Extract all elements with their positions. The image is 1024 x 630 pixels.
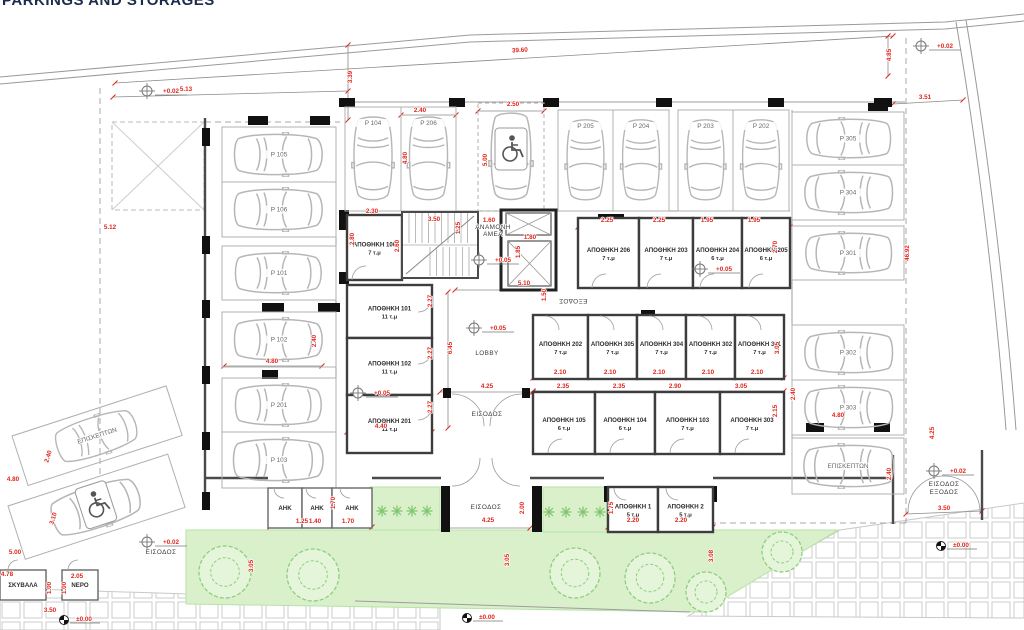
room-name: ΝΕΡΟ xyxy=(71,582,89,589)
dimension-label: 3.50 xyxy=(44,607,57,614)
dimension-label: 1.70 xyxy=(342,518,355,525)
tree-icon xyxy=(199,546,251,598)
dimension-label: 2.30 xyxy=(366,208,379,215)
dimension-label: 2.27 xyxy=(427,294,434,307)
parking-stall-επισκεπτων: ΕΠΙΣΚΕΠΤΩΝ xyxy=(12,386,182,486)
parking-stall-p-202: P 202 xyxy=(733,110,789,211)
room-name: ΑΠΟΘΗΚΗ 205 xyxy=(744,247,788,254)
shrub-icon xyxy=(377,506,388,517)
room-area: 11 τ.μ xyxy=(382,315,398,321)
room-αποθηκη-103: ΑΠΟΘΗΚΗ 1037 τ.μ xyxy=(655,392,720,454)
elevation-marker: +0.05 xyxy=(466,320,514,336)
tree-icon xyxy=(686,572,726,612)
floor-plan-sheet: PARKINGS AND STORAGES P 105P 106P 101P 1… xyxy=(0,0,1024,630)
elevation-value: +0.05 xyxy=(495,257,511,264)
dimension-label: 1.50 xyxy=(541,288,548,301)
room-area: 7 τ.μ xyxy=(746,426,759,432)
door-swing-arc xyxy=(452,458,480,486)
dimension-label: 5.12 xyxy=(104,224,117,231)
dimension-label: 2.60 xyxy=(394,239,401,252)
door-swing-arc xyxy=(490,394,522,426)
dimension-label: 2.25 xyxy=(653,217,666,224)
dimension-label: 1.00 xyxy=(46,581,53,594)
dimension-label: 3.39 xyxy=(347,70,354,83)
structural-column xyxy=(768,98,784,107)
parking-stall-p-102: P 102 xyxy=(222,312,336,367)
dimension-label: 2.80 xyxy=(349,232,356,245)
stall-label: P 301 xyxy=(840,250,857,257)
shrub-icon xyxy=(422,506,433,517)
stall-label: P 104 xyxy=(365,120,382,127)
room-αποθηκη-204: ΑΠΟΘΗΚΗ 2046 τ.μ xyxy=(693,218,742,288)
label-αμεα: ΑΜΕΑ xyxy=(483,231,503,238)
parking-stall-p-304: P 304 xyxy=(792,165,904,220)
dimension-label: 5.00 xyxy=(482,153,489,166)
stall-label: P 103 xyxy=(271,457,288,464)
room-name: ΑΠΟΘΗΚΗ 206 xyxy=(587,247,631,254)
parking-stall-p-201: P 201 xyxy=(222,378,336,432)
shrub-icon xyxy=(578,507,589,518)
dimension-label: 3.05 xyxy=(248,559,255,572)
car-icon xyxy=(685,120,726,200)
road-edge-line xyxy=(0,14,1024,77)
dimension-label: 2.10 xyxy=(554,369,567,376)
dimension-label: 3.08 xyxy=(708,549,715,562)
shrub-icon xyxy=(561,507,572,518)
wheelchair-icon xyxy=(495,128,527,170)
structural-column xyxy=(339,98,355,107)
structural-column xyxy=(310,116,330,125)
structural-column xyxy=(449,98,465,107)
dimension-label: 46.92 xyxy=(904,245,911,261)
car-icon xyxy=(407,117,449,200)
stall-label: P 204 xyxy=(633,123,650,130)
dimension-label: 39.60 xyxy=(512,46,529,54)
room-area: 7 τ.μ xyxy=(681,426,694,432)
stall-label: P 106 xyxy=(271,207,288,214)
room-area: 7 τ.μ xyxy=(660,256,673,262)
stall-label: ΕΠΙΣΚΕΠΤΩΝ xyxy=(77,426,118,445)
structural-column xyxy=(543,98,559,107)
room-αποθηκη-205: ΑΠΟΘΗΚΗ 2056 τ.μ xyxy=(742,218,790,288)
road-edge-line xyxy=(956,22,1006,430)
dimension-label: 2.27 xyxy=(427,400,434,413)
dimension-label: 2.40 xyxy=(886,467,893,480)
parking-stall-p-105: P 105 xyxy=(222,127,336,182)
stall-label: P 206 xyxy=(420,120,437,127)
room-name: ΑΗΚ xyxy=(310,505,324,512)
room-area: 11 τ.μ xyxy=(382,370,398,376)
room-name: ΑΠΟΘΗΚΗ 1 xyxy=(615,504,652,511)
dimension-label: 3.51 xyxy=(919,94,932,101)
room-name: ΑΠΟΘΗΚΗ 204 xyxy=(696,247,740,254)
room-name: ΑΠΟΘΗΚΗ 101 xyxy=(368,306,412,313)
room-area: 7 τ.μ xyxy=(753,350,766,356)
stall-label: P 205 xyxy=(577,123,594,130)
label-εισοδος: ΕΙΣΟΔΟΣ xyxy=(471,504,502,511)
elevation-value: +0.05 xyxy=(716,266,732,273)
room-αποθηκη-206: ΑΠΟΘΗΚΗ 2067 τ.μ xyxy=(578,218,639,288)
dimension-label: 2.70 xyxy=(772,240,779,253)
dimension-label: 4.85 xyxy=(886,48,893,61)
dimension-label: 5.13 xyxy=(180,86,193,93)
room-αποθηκη-102: ΑΠΟΘΗΚΗ 10211 τ.μ xyxy=(347,338,432,395)
dimension-label: 2.10 xyxy=(653,369,666,376)
parking-stall-p-205: P 205 xyxy=(558,110,613,211)
elevator-shaft xyxy=(501,210,556,290)
dimension-label: 2.90 xyxy=(669,383,682,390)
parking-stall-p-204: P 204 xyxy=(613,110,669,211)
dimension-label: 2.25 xyxy=(601,217,614,224)
dimension-label: 3.05 xyxy=(504,553,511,566)
room-area: 6 τ.μ xyxy=(711,256,724,262)
room-area: 7 τ.μ xyxy=(602,256,615,262)
structural-column xyxy=(532,486,542,532)
dimension-label: 3.10 xyxy=(48,511,59,525)
tree-icon xyxy=(762,532,802,572)
room-name: ΑΠΟΘΗΚΗ 105 xyxy=(542,417,586,424)
label-εξοδος: ΕΞΟΔΟΣ xyxy=(559,297,588,304)
dimension-label: 2.35 xyxy=(613,383,626,390)
parking-stall-p-206: P 206 xyxy=(401,107,456,211)
parking-stall-p-203: P 203 xyxy=(678,110,733,211)
dimension-label: 2.10 xyxy=(604,369,617,376)
room-name: ΑΠΟΘΗΚΗ 302 xyxy=(689,341,733,348)
elevation-marker: +0.02 xyxy=(139,534,187,550)
stall-label: P 305 xyxy=(840,136,857,143)
benchmark-value: ±0.00 xyxy=(953,542,969,549)
dimension-label: 2.10 xyxy=(702,369,715,376)
dimension-label: 2.10 xyxy=(751,369,764,376)
parking-stall-accessible xyxy=(8,454,185,559)
room-area: 7 τ.μ xyxy=(704,350,717,356)
dimension-label: 2.05 xyxy=(71,573,84,580)
stairs-elevator-layer xyxy=(402,210,556,290)
room-αποθηκη-2: ΑΠΟΘΗΚΗ 25 τ.μ xyxy=(658,487,713,532)
dimension-label: 4.80 xyxy=(7,476,20,483)
room-area: 7 τ.μ xyxy=(606,350,619,356)
shrub-icon xyxy=(407,506,418,517)
room-name: ΑΠΟΘΗΚΗ 305 xyxy=(591,341,635,348)
dimension-label: 4.80 xyxy=(402,151,409,164)
parking-stall-p-305: P 305 xyxy=(792,112,904,165)
car-icon xyxy=(565,120,606,200)
benchmark-value: ±0.00 xyxy=(76,616,92,623)
parking-stall-p-301: P 301 xyxy=(792,226,904,280)
label-εξοδος: ΕΞΟΔΟΣ xyxy=(930,489,959,496)
dimension-label: 4.25 xyxy=(929,426,936,439)
elevation-value: +0.02 xyxy=(163,539,179,546)
room-name: ΑΠΟΘΗΚΗ 106 xyxy=(353,242,397,249)
structural-column xyxy=(202,366,210,384)
dimension-label: 2.40 xyxy=(414,107,427,114)
floor-plan-drawing: P 105P 106P 101P 102P 201P 103P 104P 206… xyxy=(0,0,1024,630)
dimension-label: 1.00 xyxy=(61,581,68,594)
structural-column xyxy=(202,300,210,318)
road-edge-line xyxy=(966,20,1016,430)
dimension-label: 4.40 xyxy=(375,423,388,430)
label-εισοδος: ΕΙΣΟΔΟΣ xyxy=(929,481,960,488)
stall-label: P 201 xyxy=(271,402,288,409)
dimension-label: 4.25 xyxy=(481,383,494,390)
stall-label: P 105 xyxy=(271,152,288,159)
structural-column xyxy=(522,388,530,398)
dimension-label: 4.78 xyxy=(1,571,14,578)
parking-stall-p-106: P 106 xyxy=(222,182,336,237)
elevation-value: +0.05 xyxy=(374,390,390,397)
stall-label: P 304 xyxy=(840,190,857,197)
elevation-value: +0.05 xyxy=(490,325,506,332)
parking-stall-p-101: P 101 xyxy=(222,246,336,300)
structural-column xyxy=(202,432,210,450)
shrub-icon xyxy=(544,507,555,518)
dimension-label: 2.40 xyxy=(790,387,797,400)
shrub-icon xyxy=(392,506,403,517)
room-αποθηκη-303: ΑΠΟΘΗΚΗ 3037 τ.μ xyxy=(720,392,784,454)
dimension-label: 2.40 xyxy=(311,334,318,347)
stall-label: P 202 xyxy=(753,123,770,130)
stall-label: P 101 xyxy=(271,270,288,277)
dimension-label: 1.75 xyxy=(608,501,615,514)
structural-column xyxy=(443,388,451,398)
structural-column xyxy=(868,103,888,111)
benchmark-value: ±0.00 xyxy=(479,614,495,621)
stall-label: ΕΠΙΣΚΕΠΤΩΝ xyxy=(828,463,869,470)
car-icon xyxy=(620,120,661,200)
dimension-label: 5.10 xyxy=(518,280,531,287)
room-αποθηκη-104: ΑΠΟΘΗΚΗ 1046 τ.μ xyxy=(595,392,655,454)
structural-column xyxy=(318,303,340,312)
room-name: ΑΠΟΘΗΚΗ 202 xyxy=(539,341,583,348)
room-area: 6 τ.μ xyxy=(619,426,632,432)
dimension-label: 1.95 xyxy=(748,217,761,224)
room-name: ΣΚΥΒΑΛΑ xyxy=(8,582,38,589)
dimension-label: 1.40 xyxy=(309,518,322,525)
parking-stall-επισκεπτων: ΕΠΙΣΚΕΠΤΩΝ xyxy=(792,438,904,494)
dimension-label: 2.20 xyxy=(675,517,688,524)
dimension-label: 2.50 xyxy=(507,101,520,108)
dimension-label: 4.25 xyxy=(482,517,495,524)
room-αποθηκη-105: ΑΠΟΘΗΚΗ 1056 τ.μ xyxy=(533,392,595,454)
door-swing-arc xyxy=(452,394,484,426)
dimension-label: 4.80 xyxy=(266,358,279,365)
dimension-label: 1.25 xyxy=(296,518,309,525)
stall-label: P 302 xyxy=(840,350,857,357)
room-name: ΑΗΚ xyxy=(278,505,292,512)
dimension-label: 2.20 xyxy=(627,517,640,524)
dimension-label: 3.50 xyxy=(938,505,951,512)
room-name: ΑΠΟΘΗΚΗ 203 xyxy=(644,247,688,254)
structural-column xyxy=(248,116,268,125)
shrub-icon xyxy=(595,507,606,518)
dimension-label: 2.27 xyxy=(427,346,434,359)
structural-column xyxy=(262,303,284,312)
room-αποθηκη-203: ΑΠΟΘΗΚΗ 2037 τ.μ xyxy=(639,218,693,288)
room-area: 6 τ.μ xyxy=(760,256,773,262)
dimension-label: 5.00 xyxy=(9,549,22,556)
ramp-hatch-box xyxy=(112,122,204,210)
dimension-label: 4.80 xyxy=(832,412,845,419)
parking-stall-p-302: P 302 xyxy=(792,325,904,380)
structural-column xyxy=(202,492,210,510)
room-name: ΑΠΟΘΗΚΗ 102 xyxy=(368,361,412,368)
dimension-label: 1.70 xyxy=(330,496,337,509)
tree-icon xyxy=(550,548,600,598)
dimension-label: 1.80 xyxy=(524,234,537,241)
structural-column xyxy=(202,128,210,146)
elevation-value: +0.02 xyxy=(163,88,179,95)
dimension-label: 2.15 xyxy=(772,404,779,417)
dimension-line xyxy=(446,290,451,431)
room-αποθηκη-201: ΑΠΟΘΗΚΗ 20111 τ.μ xyxy=(347,395,432,453)
room-αποθηκη-101: ΑΠΟΘΗΚΗ 10111 τ.μ xyxy=(347,285,432,338)
structural-column xyxy=(441,486,450,532)
room-name: ΑΠΟΘΗΚΗ 103 xyxy=(666,417,710,424)
room-area: 7 τ.μ xyxy=(554,350,567,356)
label-lobby: LOBBY xyxy=(475,350,499,357)
room-name: ΑΗΚ xyxy=(345,505,359,512)
parking-stall-p-104: P 104 xyxy=(345,107,401,211)
dimension-label: 2.40 xyxy=(43,449,54,463)
dimension-label: 1.85 xyxy=(515,245,522,258)
parking-stall-p-103: P 103 xyxy=(222,432,336,488)
room-area: 7 τ.μ xyxy=(655,350,668,356)
room-name: ΑΠΟΘΗΚΗ 2 xyxy=(667,504,704,511)
room-name: ΑΠΟΘΗΚΗ 104 xyxy=(603,417,647,424)
dimension-label: 6.45 xyxy=(447,341,454,354)
car-icon xyxy=(352,117,394,200)
dimension-label: 2.35 xyxy=(557,383,570,390)
tree-icon xyxy=(287,549,339,601)
door-swing-arc xyxy=(492,458,520,486)
stall-label: P 102 xyxy=(271,337,288,344)
label-εισοδος: ΕΙΣΟΔΟΣ xyxy=(472,411,503,418)
structural-column xyxy=(202,236,210,254)
dimension-label: 1.60 xyxy=(483,217,496,224)
room-area: 7 τ.μ xyxy=(368,251,381,257)
dimension-label: 3.05 xyxy=(774,341,781,354)
dimension-label: 1.95 xyxy=(701,217,714,224)
room-area: 6 τ.μ xyxy=(558,426,571,432)
elevation-value: +0.02 xyxy=(950,468,966,475)
room-name: ΑΠΟΘΗΚΗ 303 xyxy=(730,417,774,424)
tree-icon xyxy=(625,553,675,603)
door-swing-arc xyxy=(8,560,18,570)
dimension-label: 3.05 xyxy=(735,383,748,390)
label-αναμονη: ΑΝΑΜΟΝΗ xyxy=(475,224,510,231)
stall-label: P 203 xyxy=(697,123,714,130)
dimension-label: 3.50 xyxy=(428,216,441,223)
dimension-label: 2.00 xyxy=(519,501,526,514)
room-name: ΑΠΟΘΗΚΗ 304 xyxy=(640,341,684,348)
structural-column xyxy=(656,98,672,107)
stall-label: P 303 xyxy=(840,405,857,412)
elevation-marker: +0.02 xyxy=(913,38,961,54)
elevation-value: +0.02 xyxy=(937,43,953,50)
dimension-label: 1.25 xyxy=(455,221,462,234)
car-icon xyxy=(740,120,781,200)
benchmark-icon: ±0.00 xyxy=(463,614,504,623)
label-εισοδος: ΕΙΣΟΔΟΣ xyxy=(146,549,177,556)
door-swing-arc xyxy=(68,560,78,570)
